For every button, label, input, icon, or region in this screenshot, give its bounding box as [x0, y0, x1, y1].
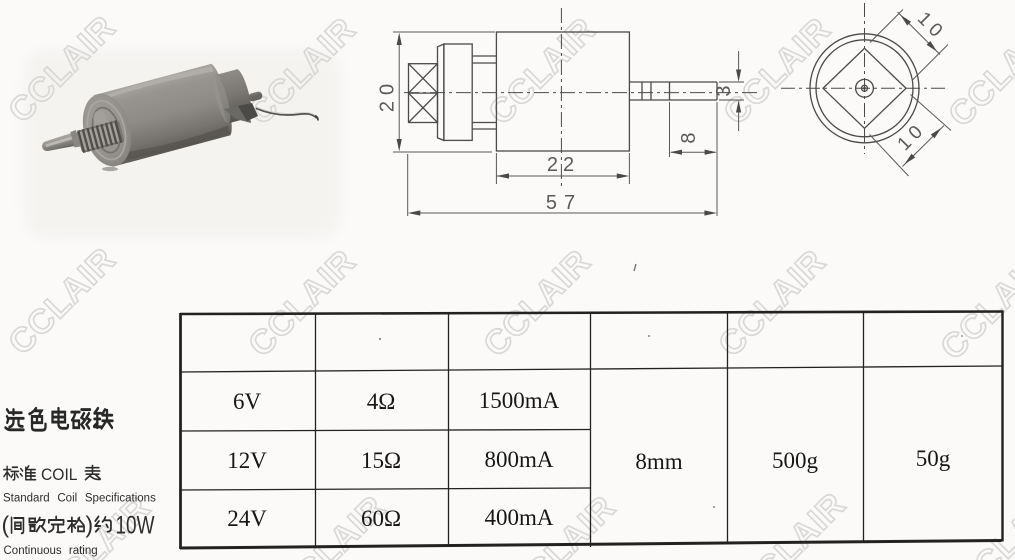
svg-text:CCLAIR: CCLAIR	[241, 242, 363, 364]
svg-text:3: 3	[713, 85, 735, 96]
svg-text:24V: 24V	[227, 506, 267, 531]
svg-text:CCLAIR: CCLAIR	[711, 242, 833, 364]
svg-text:CCLAIR: CCLAIR	[941, 12, 1015, 134]
svg-text:10W: 10W	[116, 512, 155, 540]
svg-text:(: (	[2, 512, 10, 538]
svg-text:12V: 12V	[227, 448, 267, 473]
svg-text:6V: 6V	[233, 389, 262, 414]
svg-text:CCLAIR: CCLAIR	[481, 10, 603, 132]
svg-text:COIL: COIL	[41, 465, 78, 484]
svg-text:10: 10	[894, 118, 931, 155]
svg-text:15Ω: 15Ω	[361, 448, 401, 473]
svg-text:Continuous rating: Continuous rating	[4, 545, 98, 557]
svg-text:CCLAIR: CCLAIR	[731, 485, 853, 560]
svg-text:CCLAIR: CCLAIR	[716, 10, 838, 132]
svg-text:57: 57	[546, 192, 582, 214]
svg-text:800mA: 800mA	[485, 447, 554, 472]
svg-text:8mm: 8mm	[635, 449, 682, 474]
svg-text:CCLAIR: CCLAIR	[949, 480, 1015, 560]
svg-text:400mA: 400mA	[485, 505, 554, 530]
svg-text:60Ω: 60Ω	[361, 506, 401, 531]
svg-text:500g: 500g	[772, 448, 819, 473]
svg-text:20: 20	[377, 78, 399, 112]
svg-text:10: 10	[913, 8, 950, 45]
svg-text:50g: 50g	[916, 446, 951, 471]
svg-text:8: 8	[678, 132, 700, 143]
svg-text:1500mA: 1500mA	[479, 388, 560, 413]
svg-text:CCLAIR: CCLAIR	[476, 242, 598, 364]
svg-text:Standard Coil Specifications: Standard Coil Specifications	[3, 493, 156, 505]
svg-text:): )	[86, 512, 94, 538]
svg-text:4Ω: 4Ω	[367, 389, 396, 414]
svg-text:CCLAIR: CCLAIR	[1, 240, 123, 362]
svg-text:22: 22	[547, 154, 579, 176]
